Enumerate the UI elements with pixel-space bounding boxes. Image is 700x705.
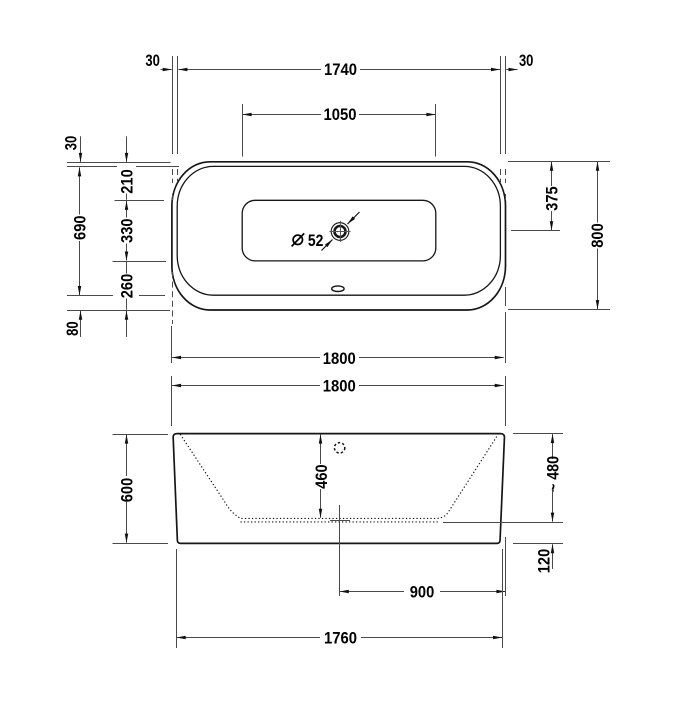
- svg-text:600: 600: [118, 478, 137, 503]
- svg-text:330: 330: [118, 218, 137, 243]
- svg-text:30: 30: [519, 51, 534, 70]
- svg-text:1740: 1740: [324, 60, 357, 79]
- svg-text:30: 30: [62, 136, 81, 151]
- svg-text:690: 690: [71, 215, 90, 240]
- svg-text:210: 210: [118, 169, 137, 194]
- svg-text:80: 80: [63, 321, 82, 336]
- svg-text:260: 260: [118, 274, 137, 299]
- svg-text:30: 30: [145, 51, 160, 70]
- svg-text:900: 900: [410, 583, 435, 602]
- svg-text:1800: 1800: [323, 376, 356, 395]
- svg-text:460: 460: [312, 464, 331, 489]
- svg-text:120: 120: [535, 549, 554, 574]
- svg-text:52: 52: [308, 231, 324, 250]
- svg-text:800: 800: [588, 223, 607, 248]
- svg-text:1760: 1760: [324, 629, 357, 648]
- svg-text:1800: 1800: [323, 349, 356, 368]
- svg-text:~ 480: ~ 480: [543, 456, 562, 492]
- svg-text:1050: 1050: [324, 105, 357, 124]
- svg-text:375: 375: [543, 186, 562, 211]
